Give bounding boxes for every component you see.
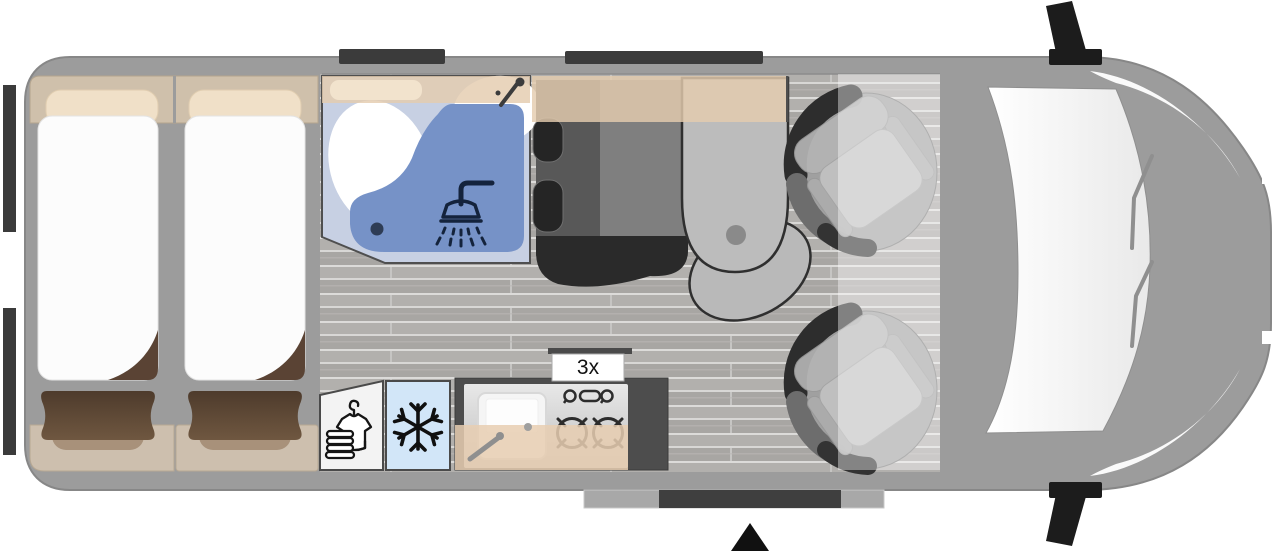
roof-window-right <box>565 51 763 64</box>
mattress-left <box>38 116 158 380</box>
stove-count-bracket <box>548 348 632 354</box>
wing-mirror-bottom <box>1046 482 1102 546</box>
rear-window-top <box>3 85 16 232</box>
backrest-cushion-left <box>41 391 155 440</box>
bench-headrest-2 <box>533 180 563 232</box>
shower-drain <box>371 223 384 236</box>
stove-count-label: 3x <box>577 356 600 379</box>
bench-headrest-1 <box>533 118 563 162</box>
floorplan-canvas: 3x <box>0 0 1280 555</box>
headboard-divider <box>173 76 176 123</box>
backrest-cushion-right <box>188 391 302 440</box>
dinette-overhead-cabinet <box>532 76 788 122</box>
overhead-pillow <box>330 80 422 100</box>
table-leg <box>726 225 746 245</box>
bathroom <box>312 70 545 263</box>
roof-window-left <box>339 49 445 64</box>
worktop-flap <box>455 425 628 470</box>
mattress-right <box>185 116 305 380</box>
campervan-floorplan: 3x <box>0 0 1280 555</box>
front-bumper-notch-bottom <box>1262 331 1280 344</box>
sliding-door-rail <box>659 490 841 508</box>
front-bumper-notch-top <box>1262 171 1280 184</box>
entry-arrow-icon <box>731 523 769 551</box>
overhead-cabinet-edge <box>786 76 789 122</box>
cab-floor-highlight <box>838 74 940 470</box>
wing-mirror-top <box>1046 1 1102 65</box>
rear-window-bottom <box>3 308 16 455</box>
